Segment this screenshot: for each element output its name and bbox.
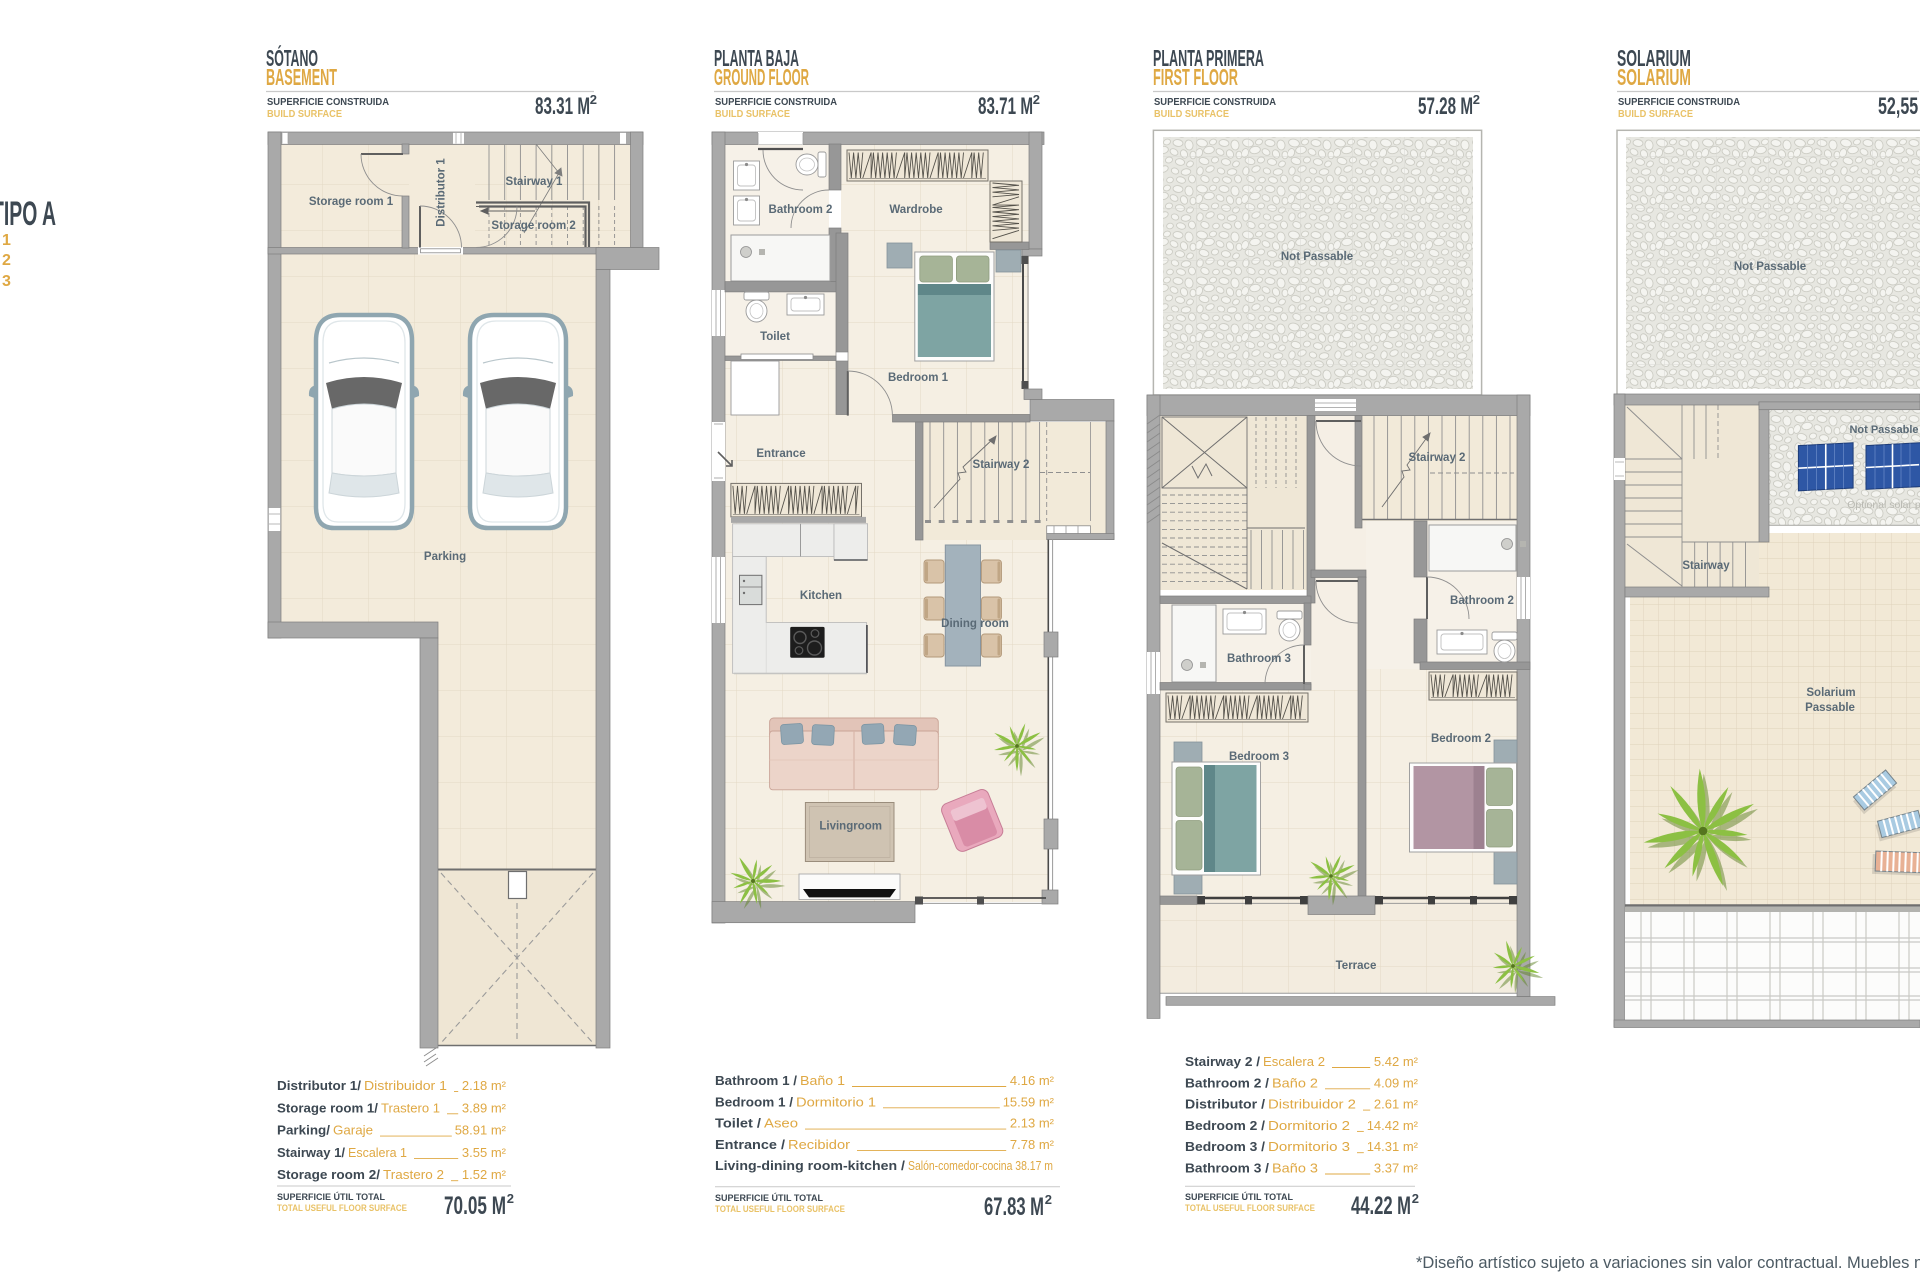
svg-text:Bathroom 2: Bathroom 2 bbox=[1450, 595, 1514, 607]
svg-text:7.78 m²: 7.78 m² bbox=[1010, 1137, 1055, 1152]
svg-text:*Diseño artístico sujeto a var: *Diseño artístico sujeto a variaciones s… bbox=[1416, 1254, 1920, 1272]
svg-text:SUPERFICIE CONSTRUIDA: SUPERFICIE CONSTRUIDA bbox=[267, 97, 389, 108]
svg-text:Storage room 2/: Storage room 2/ bbox=[277, 1167, 380, 1182]
svg-text:52,55 M: 52,55 M bbox=[1878, 93, 1920, 120]
svg-text:Not Passable: Not Passable bbox=[1281, 251, 1353, 263]
svg-text:5.42 m²: 5.42 m² bbox=[1374, 1054, 1419, 1069]
svg-text:3.55 m²: 3.55 m² bbox=[462, 1145, 507, 1160]
svg-text:BUILD SURFACE: BUILD SURFACE bbox=[267, 109, 342, 120]
svg-text:Dining room: Dining room bbox=[941, 618, 1009, 630]
svg-text:67.83 M: 67.83 M bbox=[984, 1193, 1044, 1221]
svg-text:BUILD SURFACE: BUILD SURFACE bbox=[1618, 109, 1693, 120]
svg-text:GROUND FLOOR: GROUND FLOOR bbox=[714, 64, 809, 90]
svg-text:Baño 1: Baño 1 bbox=[800, 1073, 845, 1088]
svg-text:SUPERFICIE CONSTRUIDA: SUPERFICIE CONSTRUIDA bbox=[715, 97, 837, 108]
svg-text:Baño 2: Baño 2 bbox=[1272, 1075, 1318, 1090]
svg-text:Stairway 2: Stairway 2 bbox=[1409, 452, 1466, 464]
svg-text:2: 2 bbox=[590, 92, 597, 107]
svg-text:Trastero 1: Trastero 1 bbox=[381, 1100, 440, 1115]
svg-text:15.59 m²: 15.59 m² bbox=[1003, 1094, 1055, 1109]
svg-text:Kitchen: Kitchen bbox=[800, 590, 842, 602]
svg-text:58.91 m²: 58.91 m² bbox=[455, 1123, 507, 1138]
svg-text:SUPERFICIE CONSTRUIDA: SUPERFICIE CONSTRUIDA bbox=[1618, 97, 1740, 108]
svg-text:Escalera 1: Escalera 1 bbox=[348, 1145, 407, 1160]
svg-text:2.18 m²: 2.18 m² bbox=[462, 1078, 507, 1093]
svg-text:Bathroom 2: Bathroom 2 bbox=[769, 204, 833, 216]
svg-text:3.89 m²: 3.89 m² bbox=[462, 1100, 507, 1115]
svg-text:4.16 m²: 4.16 m² bbox=[1010, 1073, 1055, 1088]
svg-text:Bedroom 3 /: Bedroom 3 / bbox=[1185, 1139, 1265, 1154]
svg-text:70.05 M: 70.05 M bbox=[444, 1192, 506, 1220]
svg-text:2: 2 bbox=[2, 252, 11, 269]
svg-text:2: 2 bbox=[507, 1191, 514, 1206]
svg-text:Recibidor: Recibidor bbox=[788, 1137, 851, 1152]
svg-text:Entrance: Entrance bbox=[756, 448, 805, 460]
svg-text:1: 1 bbox=[2, 232, 11, 249]
svg-text:14.31 m²: 14.31 m² bbox=[1367, 1139, 1419, 1154]
svg-text:Distribuidor 2: Distribuidor 2 bbox=[1268, 1097, 1356, 1112]
svg-text:3: 3 bbox=[2, 273, 11, 290]
svg-text:Stairway 2: Stairway 2 bbox=[973, 459, 1030, 471]
svg-text:Not Passable: Not Passable bbox=[1734, 261, 1806, 273]
svg-text:Bedroom 2 /: Bedroom 2 / bbox=[1185, 1118, 1265, 1133]
svg-text:Distributor /: Distributor / bbox=[1185, 1097, 1265, 1112]
svg-text:Dormitorio 3: Dormitorio 3 bbox=[1268, 1139, 1350, 1154]
svg-text:2.13 m²: 2.13 m² bbox=[1010, 1116, 1055, 1131]
svg-text:2: 2 bbox=[1045, 1192, 1052, 1207]
svg-text:Not Passable: Not Passable bbox=[1849, 424, 1918, 436]
svg-text:Optional solar p: Optional solar p bbox=[1847, 499, 1920, 511]
svg-text:Dormitorio 1: Dormitorio 1 bbox=[796, 1094, 876, 1109]
svg-text:57.28 M: 57.28 M bbox=[1418, 93, 1473, 120]
svg-text:Baño 3: Baño 3 bbox=[1272, 1161, 1318, 1176]
svg-text:83.71 M: 83.71 M bbox=[978, 93, 1033, 120]
svg-text:Parking/: Parking/ bbox=[277, 1123, 330, 1138]
svg-text:Bedroom 2: Bedroom 2 bbox=[1431, 733, 1491, 745]
svg-text:BUILD SURFACE: BUILD SURFACE bbox=[1154, 109, 1229, 120]
svg-text:Toilet /: Toilet / bbox=[715, 1116, 761, 1131]
svg-text:Bathroom 2 /: Bathroom 2 / bbox=[1185, 1075, 1269, 1090]
svg-text:TOTAL USEFUL FLOOR SURFACE: TOTAL USEFUL FLOOR SURFACE bbox=[277, 1203, 407, 1214]
svg-text:Living-dining room-kitchen /: Living-dining room-kitchen / bbox=[715, 1158, 905, 1173]
svg-text:1.52 m²: 1.52 m² bbox=[462, 1167, 507, 1182]
svg-text:Entrance /: Entrance / bbox=[715, 1137, 785, 1152]
svg-text:SUPERFICIE ÚTIL TOTAL: SUPERFICIE ÚTIL TOTAL bbox=[1185, 1191, 1293, 1203]
svg-text:3.37 m²: 3.37 m² bbox=[1374, 1161, 1419, 1176]
svg-text:2: 2 bbox=[1473, 92, 1480, 107]
svg-text:Wardrobe: Wardrobe bbox=[889, 204, 942, 216]
svg-text:Aseo: Aseo bbox=[764, 1116, 798, 1131]
svg-text:Bathroom 1 /: Bathroom 1 / bbox=[715, 1073, 797, 1088]
svg-text:Bathroom 3 /: Bathroom 3 / bbox=[1185, 1161, 1269, 1176]
svg-text:Solarium: Solarium bbox=[1806, 687, 1855, 699]
svg-text:Storage room 1: Storage room 1 bbox=[309, 196, 394, 208]
svg-text:TOTAL USEFUL FLOOR SURFACE: TOTAL USEFUL FLOOR SURFACE bbox=[1185, 1203, 1315, 1214]
svg-text:FIRST FLOOR: FIRST FLOOR bbox=[1153, 64, 1238, 90]
svg-text:Salón-comedor-cocina 38.17 m: Salón-comedor-cocina 38.17 m bbox=[908, 1158, 1053, 1173]
svg-text:Escalera 2: Escalera 2 bbox=[1263, 1054, 1325, 1069]
svg-text:SUPERFICIE CONSTRUIDA: SUPERFICIE CONSTRUIDA bbox=[1154, 97, 1276, 108]
svg-text:2: 2 bbox=[1033, 92, 1040, 107]
svg-text:2: 2 bbox=[1412, 1191, 1419, 1206]
svg-text:Bedroom 1: Bedroom 1 bbox=[888, 372, 949, 384]
svg-text:Bedroom 3: Bedroom 3 bbox=[1229, 751, 1289, 763]
svg-text:Stairway 1/: Stairway 1/ bbox=[277, 1145, 345, 1160]
svg-text:Passable: Passable bbox=[1805, 702, 1855, 714]
svg-text:Stairway 2 /: Stairway 2 / bbox=[1185, 1054, 1260, 1069]
svg-text:TOTAL USEFUL FLOOR SURFACE: TOTAL USEFUL FLOOR SURFACE bbox=[715, 1204, 845, 1215]
svg-text:4.09 m²: 4.09 m² bbox=[1374, 1075, 1419, 1090]
svg-text:Terrace: Terrace bbox=[1336, 960, 1377, 972]
svg-text:14.42 m²: 14.42 m² bbox=[1367, 1118, 1419, 1133]
svg-text:SUPERFICIE ÚTIL TOTAL: SUPERFICIE ÚTIL TOTAL bbox=[715, 1192, 823, 1204]
svg-text:Dormitorio 2: Dormitorio 2 bbox=[1268, 1118, 1350, 1133]
svg-text:SOLARIUM: SOLARIUM bbox=[1617, 64, 1691, 90]
svg-text:44.22 M: 44.22 M bbox=[1351, 1192, 1411, 1220]
svg-text:Distributor 1: Distributor 1 bbox=[436, 158, 448, 227]
svg-text:Parking: Parking bbox=[424, 551, 466, 563]
svg-text:BASEMENT: BASEMENT bbox=[266, 64, 337, 90]
svg-text:Stairway 1: Stairway 1 bbox=[506, 176, 563, 188]
svg-text:83.31 M: 83.31 M bbox=[535, 93, 590, 120]
svg-text:SUPERFICIE ÚTIL TOTAL: SUPERFICIE ÚTIL TOTAL bbox=[277, 1191, 385, 1203]
svg-text:Garaje: Garaje bbox=[333, 1123, 373, 1138]
svg-text:Toilet: Toilet bbox=[760, 331, 790, 343]
svg-text:TIPO A: TIPO A bbox=[0, 195, 56, 233]
svg-text:Bathroom 3: Bathroom 3 bbox=[1227, 653, 1291, 665]
svg-text:Stairway: Stairway bbox=[1682, 560, 1730, 572]
svg-text:Distributor 1/: Distributor 1/ bbox=[277, 1078, 361, 1093]
svg-text:2.61 m²: 2.61 m² bbox=[1374, 1097, 1419, 1112]
svg-text:Trastero 2: Trastero 2 bbox=[383, 1167, 444, 1182]
svg-text:Distribuidor 1: Distribuidor 1 bbox=[364, 1078, 447, 1093]
svg-text:Bedroom 1 /: Bedroom 1 / bbox=[715, 1094, 793, 1109]
svg-text:Storage room 1/: Storage room 1/ bbox=[277, 1100, 378, 1115]
svg-text:Storage room 2: Storage room 2 bbox=[491, 220, 575, 232]
svg-text:BUILD SURFACE: BUILD SURFACE bbox=[715, 109, 790, 120]
svg-text:Livingroom: Livingroom bbox=[819, 821, 882, 833]
